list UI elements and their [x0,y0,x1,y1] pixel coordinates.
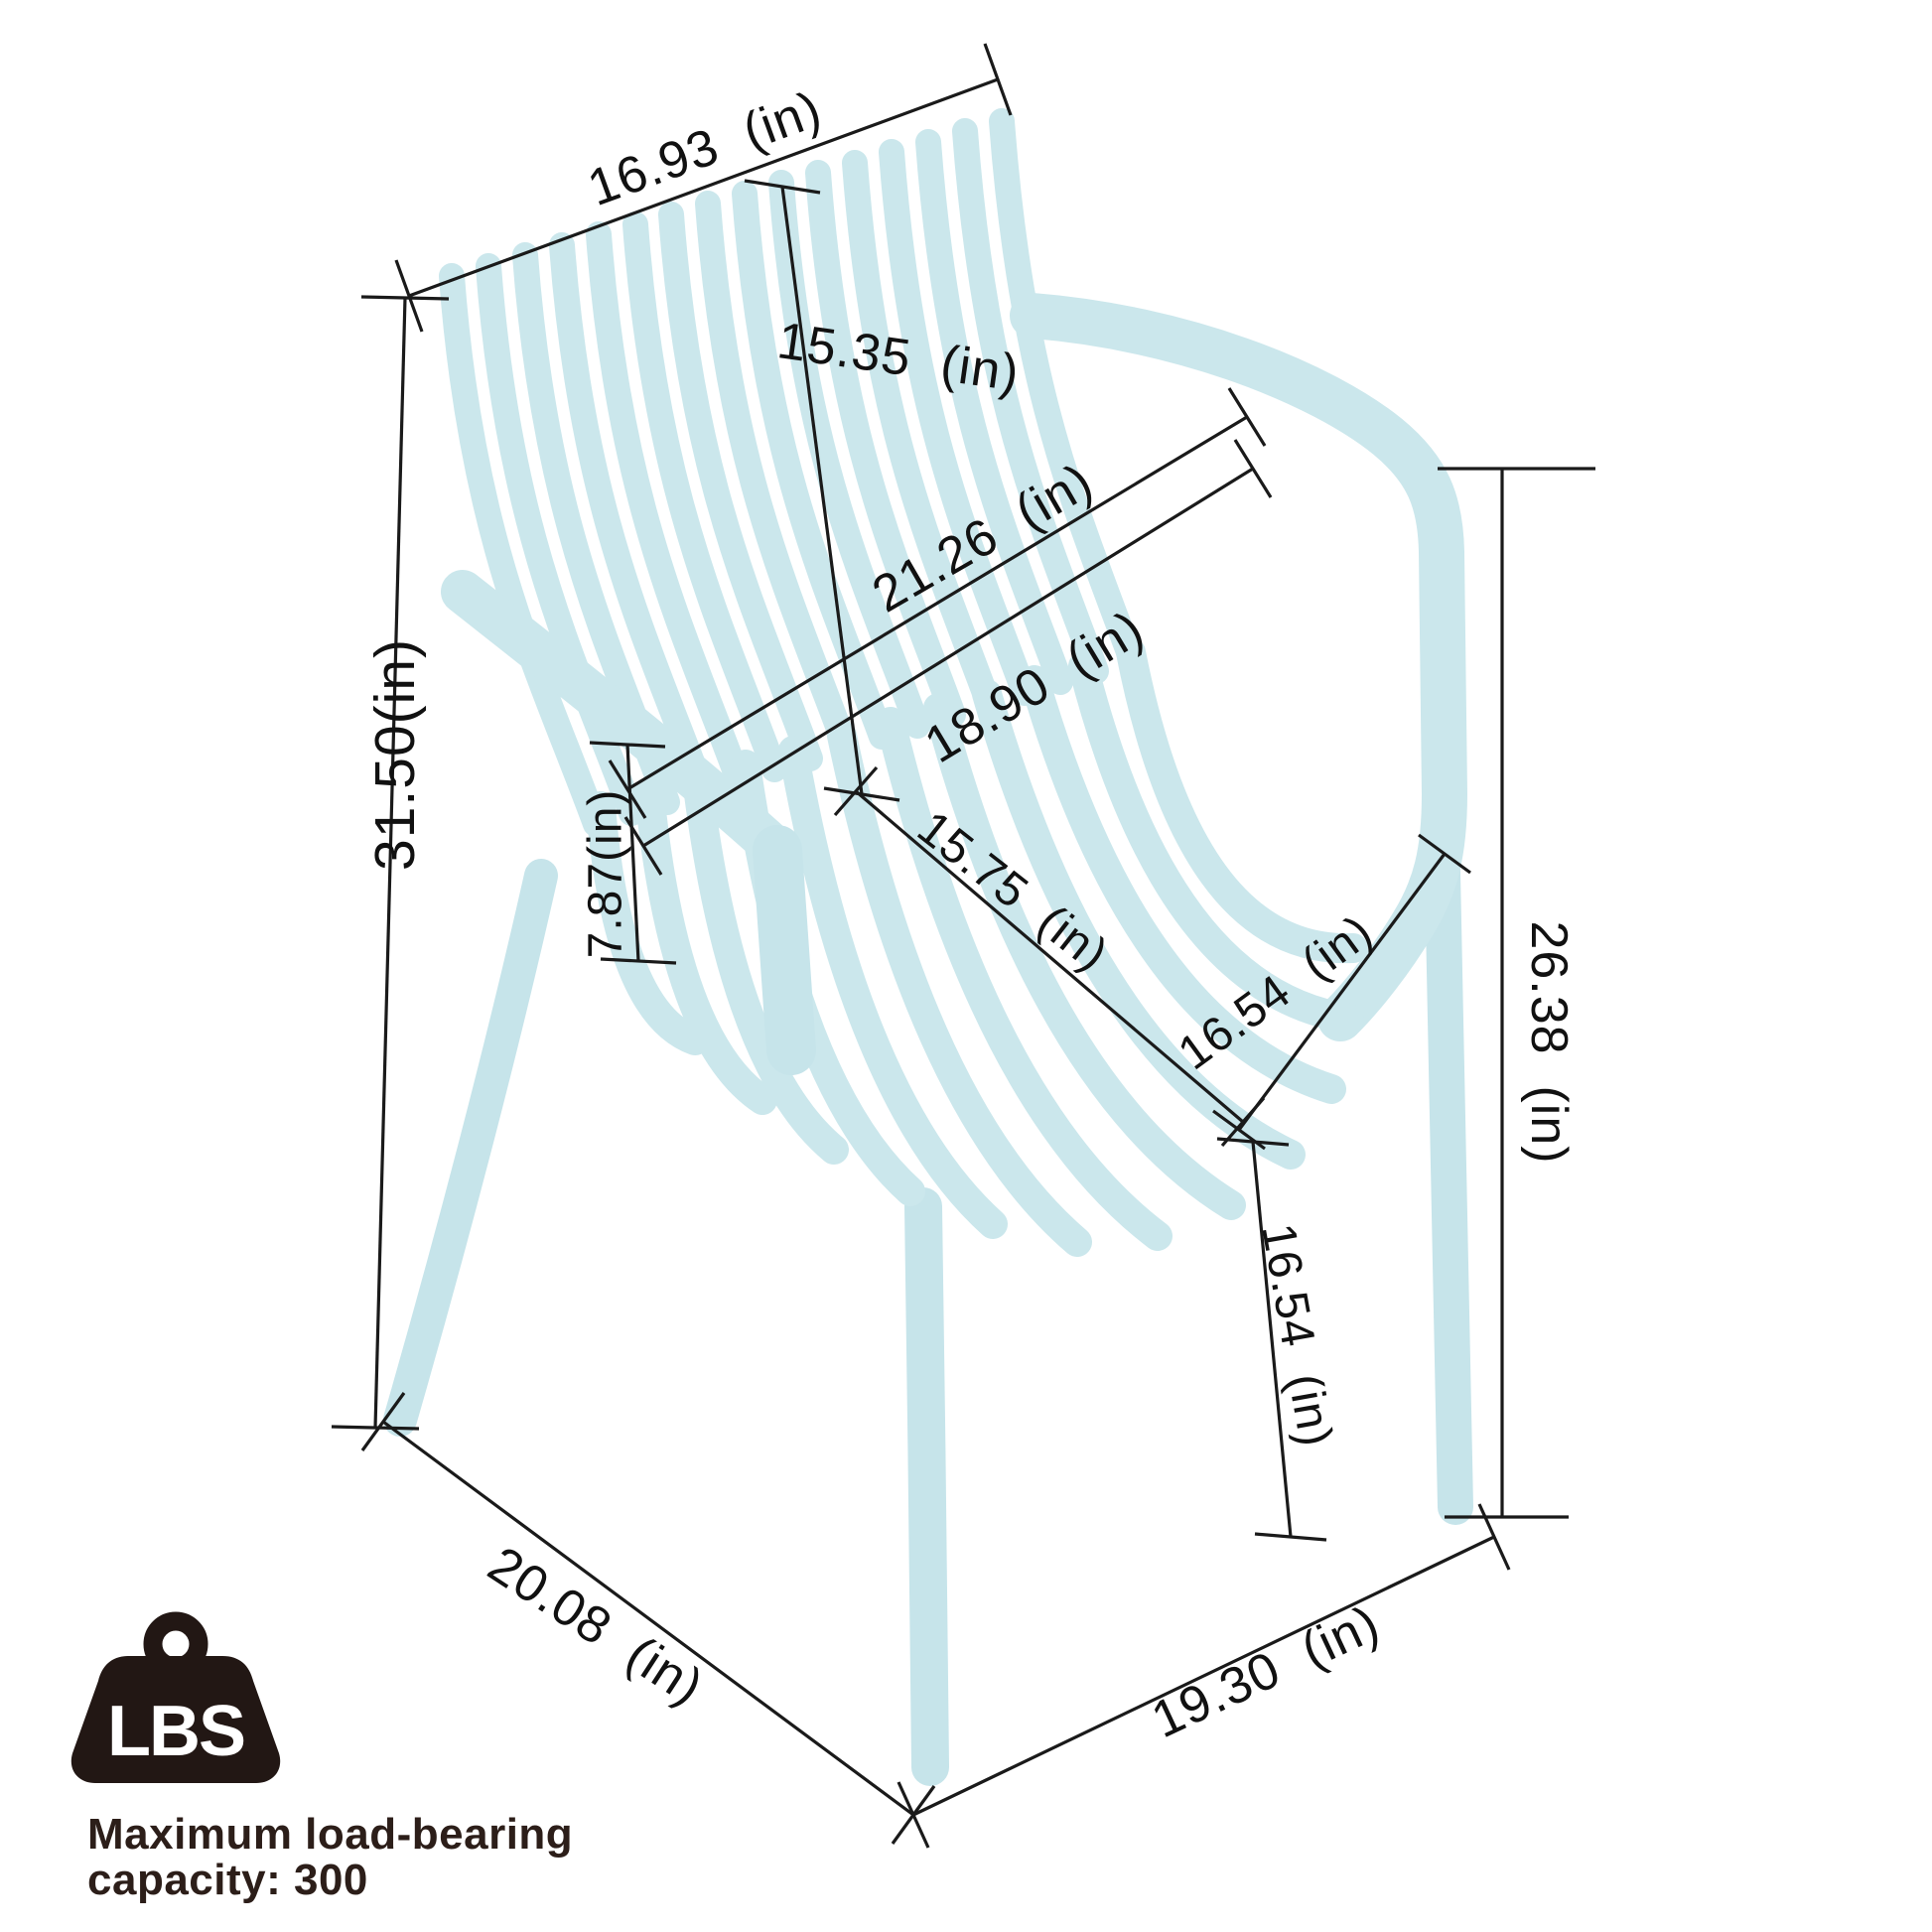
load-caption-line1: Maximum load-bearing [87,1810,573,1859]
dim-seat-floor-height-label: 16.54 (in) [1251,1220,1342,1451]
front-left-leg [400,876,541,1420]
tick [898,1782,928,1848]
dim-base-depth-label: 20.08 (in) [478,1536,713,1717]
front-right-leg [923,1206,930,1767]
tick [332,1427,419,1429]
lbs-icon-label: LBS [107,1692,244,1771]
tick [1229,388,1265,446]
dim-base-width-label: 19.30 (in) [1144,1594,1389,1749]
tick [1479,1504,1509,1570]
tick [361,297,449,299]
dimension-diagram-page: 16.93 (in) 15.35 (in) 21.26 (in) 18.90 (… [0,0,1932,1932]
tick [396,260,422,332]
dim-armrest-above-seat-label: 7.87(in) [580,789,632,959]
left-armrest-post [777,850,791,1050]
dim-base-width: 19.30 (in) [898,1504,1509,1848]
load-caption-line2: capacity: 300 [87,1856,368,1904]
dim-base-depth: 20.08 (in) [362,1393,934,1844]
back-right-leg [1442,824,1455,1507]
dim-armrest-floor-height-label: 26.38 (in) [1520,920,1578,1164]
tick [1235,440,1271,497]
dim-overall-height-label: 31.50(in) [363,638,427,871]
chair-dimension-diagram: 16.93 (in) 15.35 (in) 21.26 (in) 18.90 (… [0,0,1932,1932]
load-capacity-badge: LBS Maximum load-bearing capacity: 300 [71,1621,573,1904]
tick [985,44,1011,115]
